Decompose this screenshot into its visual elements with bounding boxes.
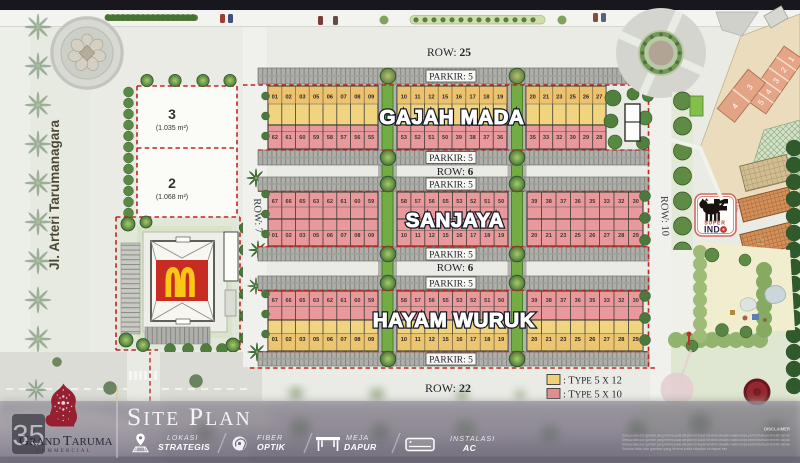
svg-text:ROW: 6: ROW: 6 bbox=[437, 262, 474, 274]
svg-text:56: 56 bbox=[429, 298, 435, 304]
svg-text:INSTALASI: INSTALASI bbox=[450, 434, 495, 443]
svg-text:AC: AC bbox=[462, 443, 477, 453]
svg-text:(1.035 m²): (1.035 m²) bbox=[156, 125, 188, 132]
svg-text:21: 21 bbox=[546, 337, 552, 343]
svg-text:05: 05 bbox=[313, 233, 319, 239]
svg-text:FIBER: FIBER bbox=[257, 433, 283, 442]
svg-text:58: 58 bbox=[401, 199, 407, 205]
svg-text:57: 57 bbox=[340, 135, 346, 141]
svg-text:32: 32 bbox=[618, 199, 624, 205]
svg-text:03: 03 bbox=[299, 233, 305, 239]
svg-text:ROW: 10: ROW: 10 bbox=[658, 196, 670, 237]
svg-text:02: 02 bbox=[285, 233, 291, 239]
svg-text:38: 38 bbox=[546, 199, 552, 205]
svg-text:29: 29 bbox=[583, 135, 589, 141]
svg-text:60: 60 bbox=[354, 199, 360, 205]
svg-text:52: 52 bbox=[470, 199, 476, 205]
svg-text:25: 25 bbox=[575, 337, 581, 343]
svg-text:39: 39 bbox=[531, 298, 537, 304]
svg-text:18: 18 bbox=[483, 95, 489, 101]
svg-text:55: 55 bbox=[442, 199, 448, 205]
svg-text:60: 60 bbox=[354, 298, 360, 304]
svg-text:12: 12 bbox=[428, 95, 434, 101]
svg-text:52: 52 bbox=[414, 135, 420, 141]
svg-text:55: 55 bbox=[442, 298, 448, 304]
svg-text:20: 20 bbox=[531, 337, 537, 343]
svg-text:39: 39 bbox=[456, 135, 462, 141]
svg-text:25: 25 bbox=[575, 233, 581, 239]
svg-text:35: 35 bbox=[589, 199, 595, 205]
svg-text:IND: IND bbox=[704, 225, 720, 235]
svg-text:16: 16 bbox=[456, 95, 462, 101]
svg-text:57: 57 bbox=[415, 298, 421, 304]
svg-text:10: 10 bbox=[401, 95, 407, 101]
svg-text:25: 25 bbox=[570, 95, 576, 101]
svg-text:19: 19 bbox=[498, 233, 504, 239]
svg-text:: TYPE 5 X 12: : TYPE 5 X 12 bbox=[563, 376, 622, 387]
svg-text:58: 58 bbox=[327, 135, 333, 141]
svg-text:PARKIR: 5: PARKIR: 5 bbox=[429, 180, 473, 190]
svg-text:MEJA: MEJA bbox=[346, 433, 369, 442]
svg-text:19: 19 bbox=[497, 95, 503, 101]
svg-text:06: 06 bbox=[327, 95, 333, 101]
svg-text:32: 32 bbox=[618, 298, 624, 304]
svg-text:11: 11 bbox=[415, 95, 421, 101]
svg-text:18: 18 bbox=[484, 233, 490, 239]
svg-text:05: 05 bbox=[313, 337, 319, 343]
svg-text:27: 27 bbox=[596, 95, 602, 101]
svg-text:01: 01 bbox=[272, 337, 278, 343]
svg-text:53: 53 bbox=[456, 199, 462, 205]
svg-text:55: 55 bbox=[368, 135, 374, 141]
svg-text:02: 02 bbox=[285, 95, 291, 101]
svg-text:57: 57 bbox=[415, 199, 421, 205]
svg-text:06: 06 bbox=[327, 337, 333, 343]
svg-text:59: 59 bbox=[368, 199, 374, 205]
svg-text:3: 3 bbox=[168, 106, 176, 122]
svg-text:61: 61 bbox=[285, 135, 291, 141]
svg-text:09: 09 bbox=[368, 337, 374, 343]
svg-text:07: 07 bbox=[340, 95, 346, 101]
svg-text:2: 2 bbox=[168, 175, 176, 191]
svg-text:09: 09 bbox=[368, 233, 374, 239]
svg-text:37: 37 bbox=[483, 135, 489, 141]
svg-text:19: 19 bbox=[498, 337, 504, 343]
svg-text:51: 51 bbox=[484, 199, 490, 205]
svg-text:08: 08 bbox=[354, 233, 360, 239]
svg-text:16: 16 bbox=[456, 233, 462, 239]
svg-text:07: 07 bbox=[340, 337, 346, 343]
svg-text:12: 12 bbox=[429, 233, 435, 239]
svg-text:28: 28 bbox=[596, 135, 602, 141]
svg-text:23: 23 bbox=[560, 337, 566, 343]
svg-text:10: 10 bbox=[401, 233, 407, 239]
svg-text:11: 11 bbox=[415, 233, 421, 239]
svg-text:05: 05 bbox=[313, 95, 319, 101]
svg-text:STRATEGIS: STRATEGIS bbox=[158, 442, 210, 452]
svg-text:02: 02 bbox=[285, 337, 291, 343]
svg-text:Jl. Arteri Tarumanagara: Jl. Arteri Tarumanagara bbox=[47, 119, 62, 270]
svg-text:53: 53 bbox=[456, 298, 462, 304]
svg-text:OPTIK: OPTIK bbox=[257, 442, 286, 452]
svg-text:39: 39 bbox=[531, 199, 537, 205]
svg-text:56: 56 bbox=[429, 199, 435, 205]
svg-text:52: 52 bbox=[470, 298, 476, 304]
svg-text:15: 15 bbox=[442, 233, 448, 239]
svg-text:26: 26 bbox=[589, 337, 595, 343]
svg-text:38: 38 bbox=[469, 135, 475, 141]
svg-text:65: 65 bbox=[299, 298, 305, 304]
svg-text:27: 27 bbox=[604, 233, 610, 239]
svg-text:PARKIR: 5: PARKIR: 5 bbox=[429, 154, 473, 164]
svg-text:ROW: 25: ROW: 25 bbox=[427, 47, 471, 59]
svg-text:20: 20 bbox=[531, 233, 537, 239]
svg-text:COMMERCIAL: COMMERCIAL bbox=[36, 449, 92, 454]
svg-text:23: 23 bbox=[556, 95, 562, 101]
svg-text:50: 50 bbox=[498, 199, 504, 205]
svg-text:: TYPE 5 X 10: : TYPE 5 X 10 bbox=[563, 390, 622, 401]
svg-text:33: 33 bbox=[543, 135, 549, 141]
svg-text:53: 53 bbox=[401, 135, 407, 141]
svg-text:30: 30 bbox=[633, 199, 639, 205]
svg-text:HAYAM WURUK: HAYAM WURUK bbox=[373, 309, 535, 332]
svg-text:27: 27 bbox=[604, 337, 610, 343]
svg-text:36: 36 bbox=[497, 135, 503, 141]
svg-text:29: 29 bbox=[633, 337, 639, 343]
svg-text:50: 50 bbox=[442, 135, 448, 141]
svg-text:28: 28 bbox=[618, 337, 624, 343]
svg-text:67: 67 bbox=[272, 298, 278, 304]
svg-text:PARKIR: 5: PARKIR: 5 bbox=[429, 250, 473, 260]
svg-text:Semua data dan gambar yang ter: Semua data dan gambar yang tertera pada … bbox=[622, 443, 790, 447]
svg-text:GAJAH MADA: GAJAH MADA bbox=[380, 106, 525, 129]
svg-text:18: 18 bbox=[484, 337, 490, 343]
svg-text:36: 36 bbox=[575, 298, 581, 304]
svg-text:61: 61 bbox=[340, 298, 346, 304]
svg-text:30: 30 bbox=[570, 135, 576, 141]
svg-text:62: 62 bbox=[272, 135, 278, 141]
svg-text:Semua data dan gambar yang ter: Semua data dan gambar yang tertera pada … bbox=[622, 438, 790, 442]
svg-text:ROW: 6: ROW: 6 bbox=[437, 166, 474, 178]
svg-text:17: 17 bbox=[469, 95, 475, 101]
svg-text:62: 62 bbox=[327, 199, 333, 205]
svg-text:11: 11 bbox=[415, 337, 421, 343]
svg-text:SANJAYA: SANJAYA bbox=[406, 209, 504, 232]
svg-text:03: 03 bbox=[299, 95, 305, 101]
svg-text:63: 63 bbox=[313, 298, 319, 304]
svg-text:DISCLAIMER: DISCLAIMER bbox=[764, 427, 790, 432]
svg-text:17: 17 bbox=[470, 337, 476, 343]
svg-text:65: 65 bbox=[299, 199, 305, 205]
svg-text:(1.068 m²): (1.068 m²) bbox=[156, 194, 188, 201]
svg-text:35: 35 bbox=[530, 135, 536, 141]
svg-text:08: 08 bbox=[354, 95, 360, 101]
svg-text:15: 15 bbox=[442, 95, 448, 101]
svg-text:67: 67 bbox=[272, 199, 278, 205]
svg-text:17: 17 bbox=[470, 233, 476, 239]
svg-text:16: 16 bbox=[456, 337, 462, 343]
svg-text:06: 06 bbox=[327, 233, 333, 239]
svg-text:59: 59 bbox=[368, 298, 374, 304]
svg-text:51: 51 bbox=[428, 135, 434, 141]
svg-text:01: 01 bbox=[272, 233, 278, 239]
svg-text:26: 26 bbox=[589, 233, 595, 239]
svg-text:60: 60 bbox=[299, 135, 305, 141]
svg-text:36: 36 bbox=[575, 199, 581, 205]
svg-text:GRAND TARUMA: GRAND TARUMA bbox=[19, 434, 113, 449]
svg-text:PARKIR: 5: PARKIR: 5 bbox=[429, 355, 473, 365]
svg-text:21: 21 bbox=[546, 233, 552, 239]
svg-text:30: 30 bbox=[633, 298, 639, 304]
svg-text:Semua data dan gambar yang ter: Semua data dan gambar yang tertera pada … bbox=[622, 447, 728, 451]
svg-text:09: 09 bbox=[368, 95, 374, 101]
svg-text:Semua data dan gambar yang ter: Semua data dan gambar yang tertera pada … bbox=[622, 434, 790, 438]
svg-text:66: 66 bbox=[285, 199, 291, 205]
svg-text:66: 66 bbox=[285, 298, 291, 304]
svg-text:51: 51 bbox=[484, 298, 490, 304]
svg-text:32: 32 bbox=[556, 135, 562, 141]
svg-text:LOKASI: LOKASI bbox=[167, 435, 198, 442]
svg-text:01: 01 bbox=[272, 95, 278, 101]
svg-text:59: 59 bbox=[313, 135, 319, 141]
svg-text:08: 08 bbox=[354, 337, 360, 343]
svg-text:20: 20 bbox=[530, 95, 536, 101]
svg-text:21: 21 bbox=[543, 95, 549, 101]
svg-text:15: 15 bbox=[442, 337, 448, 343]
svg-text:23: 23 bbox=[560, 233, 566, 239]
svg-text:26: 26 bbox=[583, 95, 589, 101]
svg-text:DAPUR: DAPUR bbox=[344, 442, 377, 452]
svg-text:PARKIR: 5: PARKIR: 5 bbox=[429, 72, 473, 82]
svg-text:58: 58 bbox=[401, 298, 407, 304]
svg-text:10: 10 bbox=[401, 337, 407, 343]
svg-text:37: 37 bbox=[560, 298, 566, 304]
svg-text:50: 50 bbox=[498, 298, 504, 304]
svg-text:37: 37 bbox=[560, 199, 566, 205]
svg-text:33: 33 bbox=[604, 298, 610, 304]
svg-text:56: 56 bbox=[354, 135, 360, 141]
svg-text:28: 28 bbox=[618, 233, 624, 239]
svg-text:PARKIR: 5: PARKIR: 5 bbox=[429, 279, 473, 289]
svg-text:62: 62 bbox=[327, 298, 333, 304]
svg-text:03: 03 bbox=[299, 337, 305, 343]
svg-text:63: 63 bbox=[313, 199, 319, 205]
svg-text:29: 29 bbox=[633, 233, 639, 239]
svg-text:33: 33 bbox=[604, 199, 610, 205]
svg-text:61: 61 bbox=[340, 199, 346, 205]
svg-text:07: 07 bbox=[340, 233, 346, 239]
svg-text:35: 35 bbox=[589, 298, 595, 304]
svg-text:38: 38 bbox=[546, 298, 552, 304]
svg-text:12: 12 bbox=[429, 337, 435, 343]
